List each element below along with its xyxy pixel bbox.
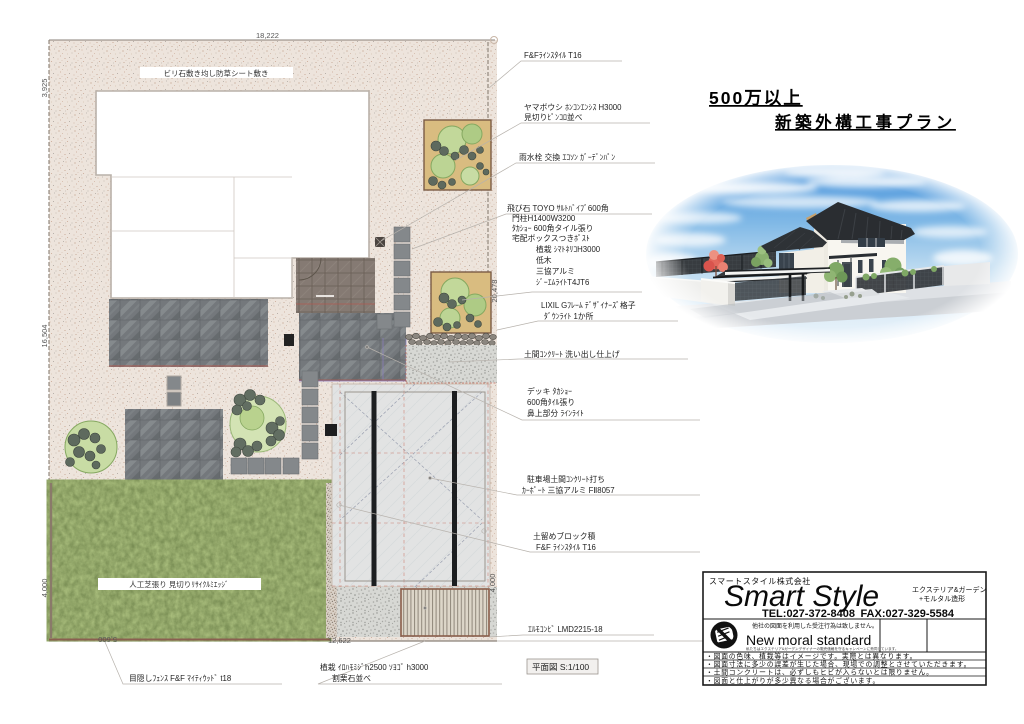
svg-text:ヤマボウシ ﾎﾝｺﾝｴﾝｼｽ H3000: ヤマボウシ ﾎﾝｺﾝｴﾝｼｽ H3000	[524, 103, 622, 112]
svg-text:・土間コンクリートは、必ずしもヒビが入らないとは限りません。: ・土間コンクリートは、必ずしもヒビが入らないとは限りません。	[706, 668, 934, 677]
svg-text:600角ﾀｲﾙ張り: 600角ﾀｲﾙ張り	[527, 397, 575, 407]
svg-text:駐車場土間ｺﾝｸﾘｰﾄ打ち: 駐車場土間ｺﾝｸﾘｰﾄ打ち	[527, 474, 605, 484]
svg-text:デッキ ﾀｶｼｮｰ: デッキ ﾀｶｼｮｰ	[527, 386, 572, 396]
svg-text:12,622: 12,622	[328, 636, 351, 645]
svg-text:F&F ﾗｲﾝｽﾀｲﾙ T16: F&F ﾗｲﾝｽﾀｲﾙ T16	[536, 543, 596, 552]
svg-text:+モルタル造形: +モルタル造形	[919, 594, 965, 603]
svg-text:私たちはエクステリア&ガーデンデザイナーの販売価格を守るキャ: 私たちはエクステリア&ガーデンデザイナーの販売価格を守るキャンペーンに賛同してい…	[746, 646, 899, 651]
svg-text:新築外構工事プラン: 新築外構工事プラン	[775, 112, 956, 132]
svg-text:エクステリア&ガーデン: エクステリア&ガーデン	[912, 585, 986, 594]
svg-text:5,600: 5,600	[98, 635, 117, 644]
svg-text:ｶｰﾎﾟｰﾄ 三協アルミ FⅡ8057: ｶｰﾎﾟｰﾄ 三協アルミ FⅡ8057	[522, 485, 615, 495]
svg-text:4,000: 4,000	[488, 574, 497, 593]
svg-text:ﾀｶｼｮｰ 600角タイル張り: ﾀｶｼｮｰ 600角タイル張り	[512, 223, 593, 233]
svg-text:見切りﾋﾟﾝｺﾛ並べ: 見切りﾋﾟﾝｺﾛ並べ	[524, 112, 583, 122]
svg-text:3,925: 3,925	[40, 79, 49, 98]
svg-text:・図面寸法に多少の誤差が生じた場合、現場での調整とさせていた: ・図面寸法に多少の誤差が生じた場合、現場での調整とさせていただきます。	[706, 660, 971, 669]
svg-text:割栗石並べ: 割栗石並べ	[332, 673, 371, 683]
svg-text:・図面の色味、植栽等はイメージです。実際とは異なります。: ・図面の色味、植栽等はイメージです。実際とは異なります。	[706, 652, 917, 661]
svg-text:ｼﾞｰｴﾑﾗｲﾄT4JT6: ｼﾞｰｴﾑﾗｲﾄT4JT6	[536, 278, 589, 287]
svg-text:ｴﾙﾓｺﾝﾋﾞ LMD2215-18: ｴﾙﾓｺﾝﾋﾞ LMD2215-18	[528, 625, 603, 634]
svg-text:LIXIL Gﾌﾚｰﾑ ﾃﾞｻﾞｲﾅｰｽﾞ格子: LIXIL Gﾌﾚｰﾑ ﾃﾞｻﾞｲﾅｰｽﾞ格子	[541, 300, 636, 310]
svg-text:三協アルミ: 三協アルミ	[536, 266, 575, 276]
svg-text:土留めブロック積: 土留めブロック積	[533, 531, 596, 541]
svg-text:土間ｺﾝｸﾘｰﾄ 洗い出し仕上げ: 土間ｺﾝｸﾘｰﾄ 洗い出し仕上げ	[524, 349, 620, 359]
svg-text:F&Fﾗｲﾝｽﾀｲﾙ T16: F&Fﾗｲﾝｽﾀｲﾙ T16	[524, 51, 582, 60]
svg-text:人工芝張り 見切りﾘｻｲｸﾙﾐｴｯｼﾞ: 人工芝張り 見切りﾘｻｲｸﾙﾐｴｯｼﾞ	[129, 579, 229, 589]
svg-text:雨水栓 交換 ｴｺｿﾝ ｶﾞｰﾃﾞﾝﾊﾟﾝ: 雨水栓 交換 ｴｺｿﾝ ｶﾞｰﾃﾞﾝﾊﾟﾝ	[519, 152, 615, 162]
svg-text:飛び石 TOYO ｻﾙﾄﾊﾞｲﾌﾞ600角: 飛び石 TOYO ｻﾙﾄﾊﾞｲﾌﾞ600角	[507, 203, 609, 213]
svg-text:4,000: 4,000	[40, 579, 49, 598]
svg-text:18,222: 18,222	[256, 31, 279, 40]
svg-text:低木: 低木	[536, 255, 552, 265]
svg-text:植栽 ｲﾛﾊﾓﾐｼﾞh2500 ｿﾖｺﾞ h3000: 植栽 ｲﾛﾊﾓﾐｼﾞh2500 ｿﾖｺﾞ h3000	[320, 662, 429, 672]
svg-text:宅配ボックスつきﾎﾟｽﾄ: 宅配ボックスつきﾎﾟｽﾄ	[512, 233, 590, 243]
svg-text:鼻上部分 ﾗｲﾝﾗｲﾄ: 鼻上部分 ﾗｲﾝﾗｲﾄ	[527, 408, 584, 418]
svg-text:New moral standard: New moral standard	[746, 632, 871, 648]
svg-text:他社の図面を利用した受注行為は致しません。: 他社の図面を利用した受注行為は致しません。	[752, 622, 878, 630]
svg-text:500万以上: 500万以上	[709, 88, 803, 108]
svg-text:ビリ石敷き均し防草シート敷き: ビリ石敷き均し防草シート敷き	[164, 68, 269, 78]
svg-text:16,504: 16,504	[40, 325, 49, 348]
svg-text:・図面と仕上がりが多少異なる場合がございます。: ・図面と仕上がりが多少異なる場合がございます。	[706, 676, 880, 685]
svg-text:ﾀﾞｳﾝﾗｲﾄ 1か所: ﾀﾞｳﾝﾗｲﾄ 1か所	[544, 311, 594, 321]
svg-text:植栽 ｼﾏﾄﾈﾘｺH3000: 植栽 ｼﾏﾄﾈﾘｺH3000	[536, 244, 601, 254]
svg-text:門柱H1400W3200: 門柱H1400W3200	[512, 213, 576, 223]
svg-text:平面図 S:1/100: 平面図 S:1/100	[532, 662, 589, 672]
svg-text:目隠しﾌｪﾝｽ F&F ﾏｲﾃｨｳｯﾄﾞ t18: 目隠しﾌｪﾝｽ F&F ﾏｲﾃｨｳｯﾄﾞ t18	[129, 673, 231, 683]
svg-text:TEL:027-372-8408 FAX:027-329-5: TEL:027-372-8408 FAX:027-329-5584	[762, 608, 955, 620]
svg-text:20,478: 20,478	[490, 280, 499, 303]
